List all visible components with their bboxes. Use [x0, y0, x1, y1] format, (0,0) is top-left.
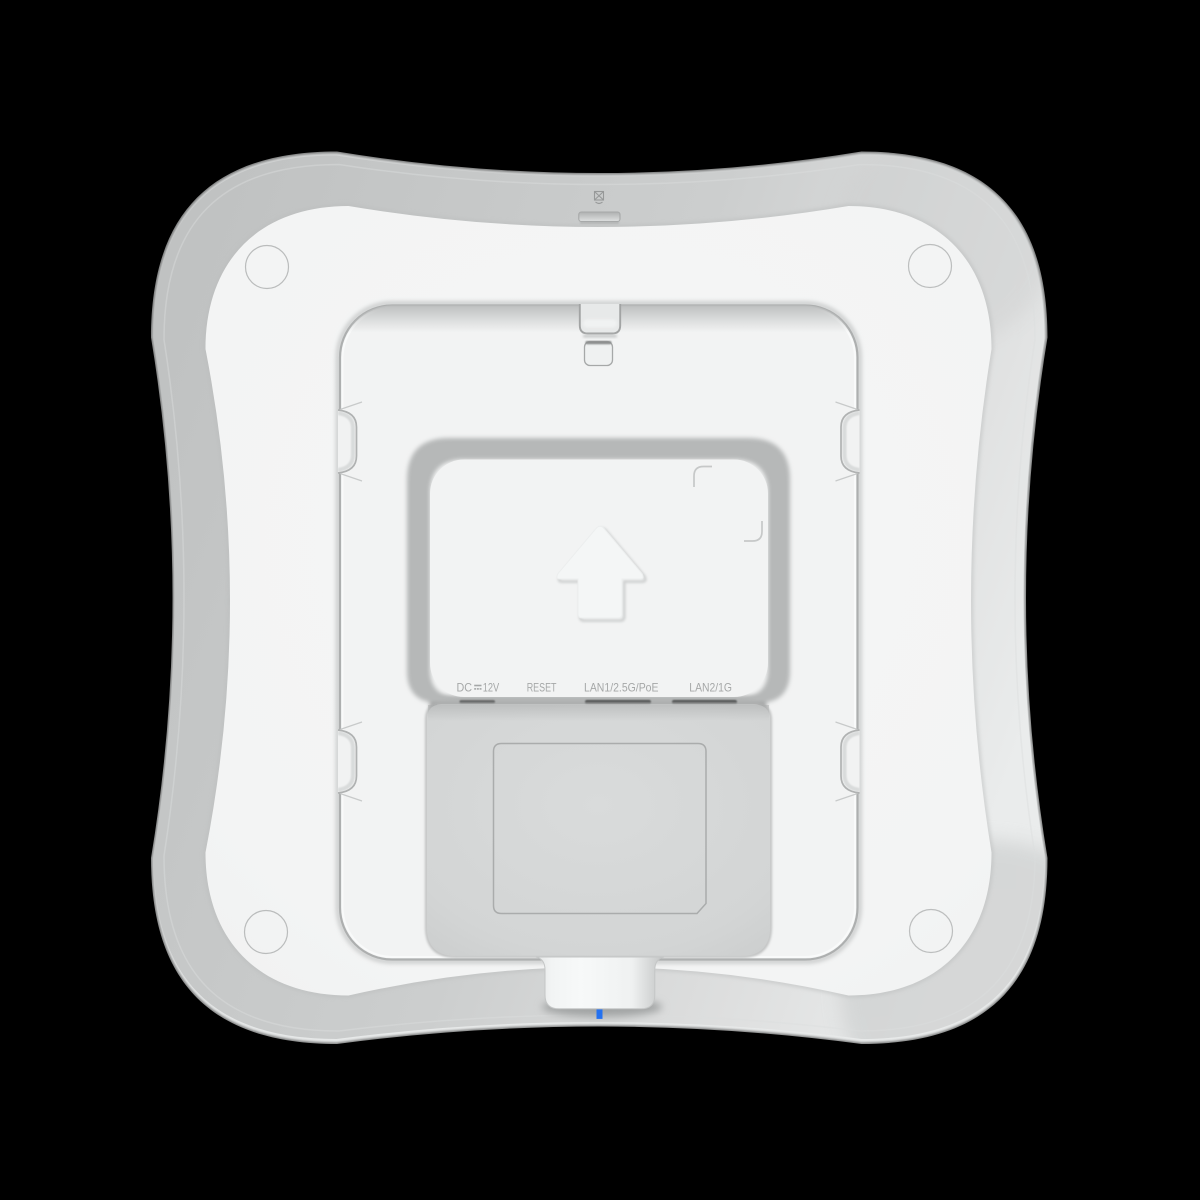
svg-text:DC: DC [457, 682, 473, 695]
svg-text:12V: 12V [483, 682, 500, 695]
svg-text:LAN1/2.5G/PoE: LAN1/2.5G/PoE [584, 682, 659, 695]
svg-text:RESET: RESET [527, 682, 557, 695]
svg-text:LAN2/1G: LAN2/1G [689, 682, 732, 695]
